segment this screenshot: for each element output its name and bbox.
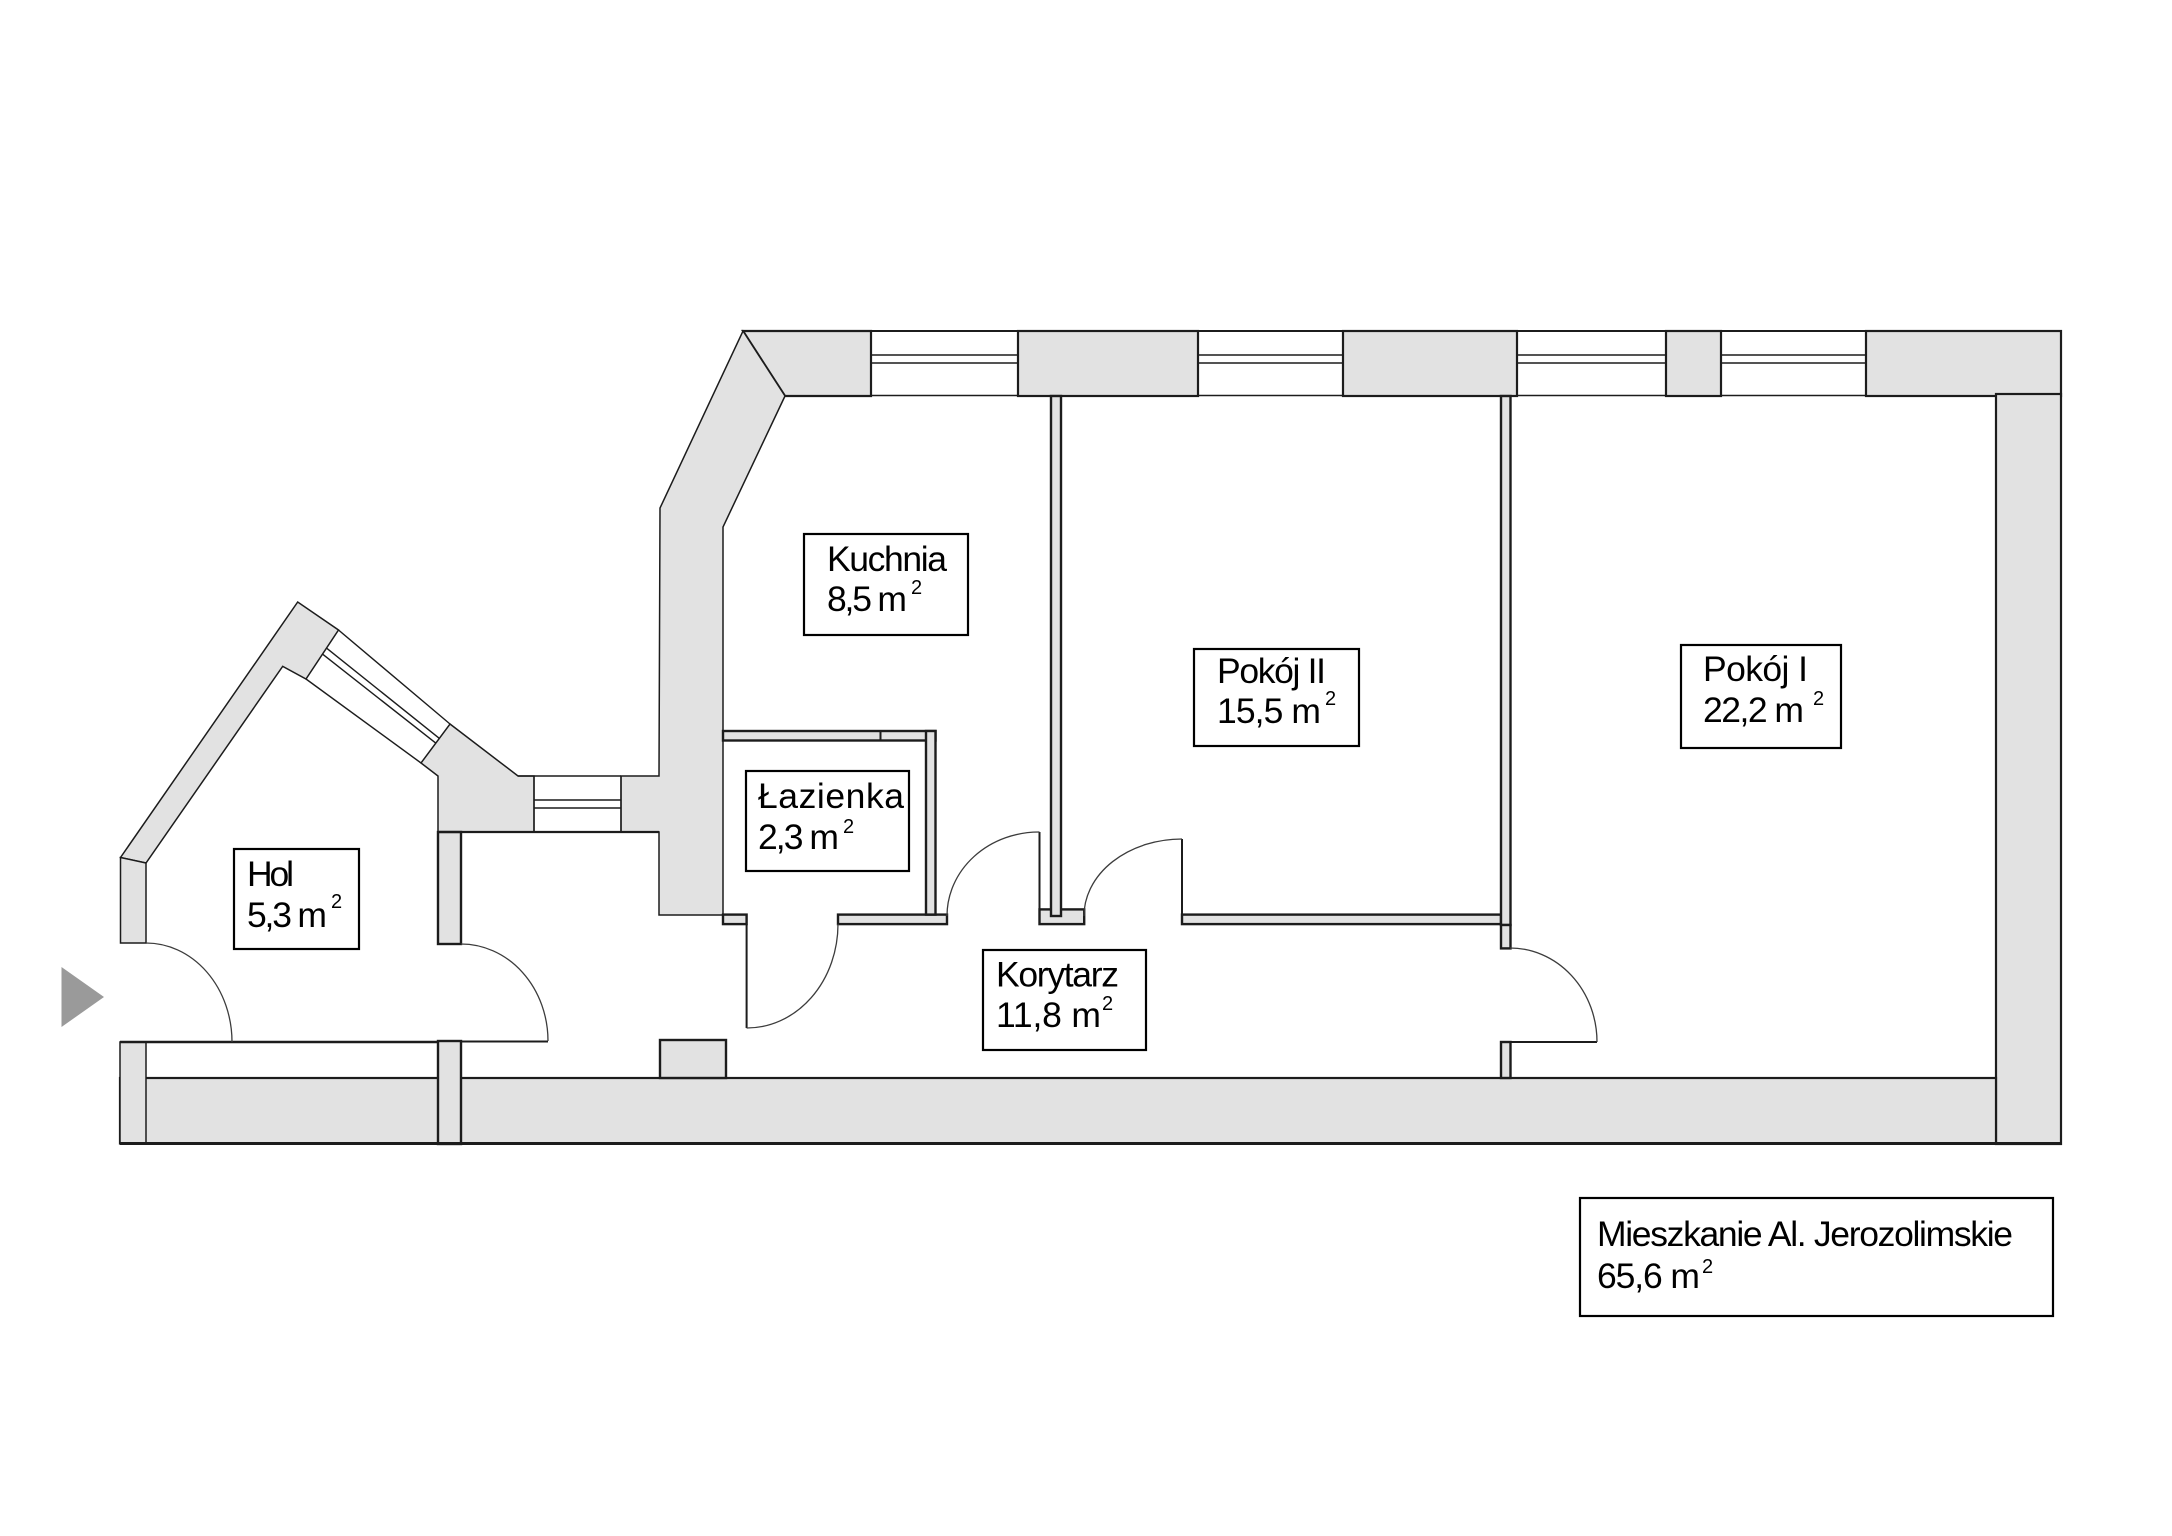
svg-text:2: 2 bbox=[911, 577, 922, 599]
svg-text:15,5 m: 15,5 m bbox=[1217, 691, 1321, 731]
svg-text:Hol: Hol bbox=[247, 854, 294, 894]
svg-text:5,3 m: 5,3 m bbox=[247, 895, 327, 935]
svg-text:2,3 m: 2,3 m bbox=[758, 817, 839, 857]
svg-text:Mieszkanie Al. Jerozolimskie: Mieszkanie Al. Jerozolimskie bbox=[1597, 1214, 2013, 1254]
svg-text:Korytarz: Korytarz bbox=[996, 955, 1119, 995]
svg-text:2: 2 bbox=[1813, 688, 1824, 710]
svg-text:2: 2 bbox=[843, 816, 854, 838]
svg-text:Kuchnia: Kuchnia bbox=[827, 539, 947, 579]
svg-text:Pokój I: Pokój I bbox=[1703, 649, 1808, 689]
svg-text:11,8 m: 11,8 m bbox=[996, 995, 1101, 1035]
svg-text:22,2 m: 22,2 m bbox=[1703, 690, 1804, 730]
svg-text:Łazienka: Łazienka bbox=[758, 776, 904, 816]
svg-text:Pokój II: Pokój II bbox=[1217, 651, 1326, 691]
svg-text:8,5 m: 8,5 m bbox=[827, 579, 907, 619]
svg-text:2: 2 bbox=[1702, 1256, 1713, 1278]
svg-text:65,6 m: 65,6 m bbox=[1597, 1256, 1700, 1296]
svg-text:2: 2 bbox=[1325, 688, 1336, 710]
svg-text:2: 2 bbox=[1102, 993, 1113, 1015]
svg-text:2: 2 bbox=[331, 891, 342, 913]
